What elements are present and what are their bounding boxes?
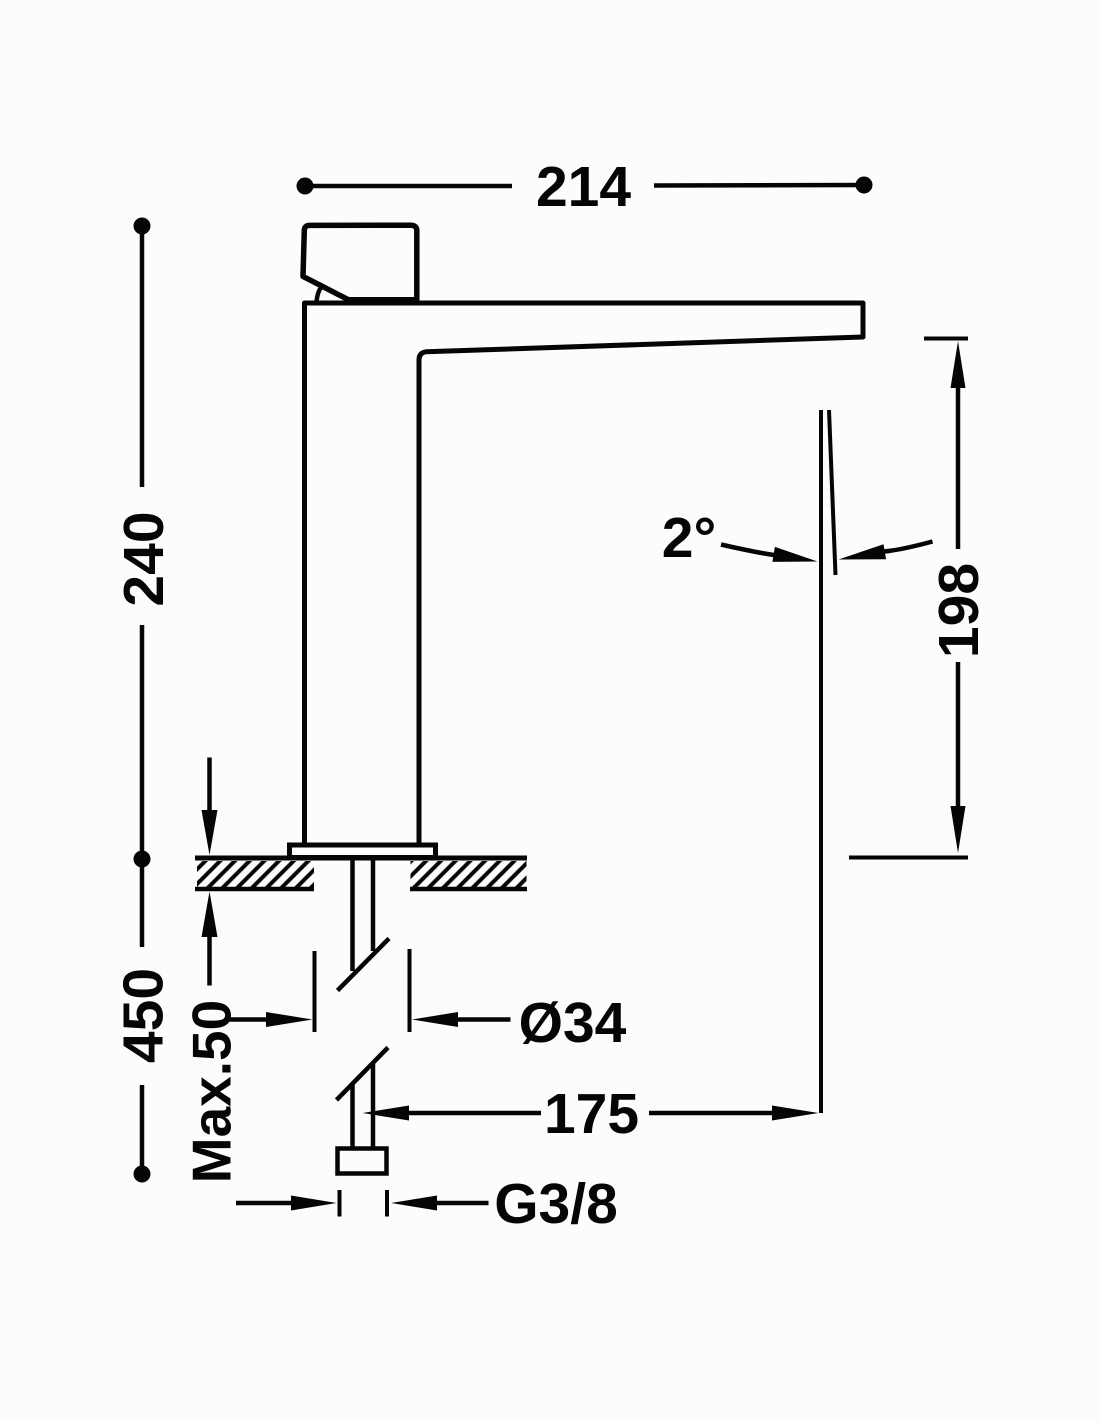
svg-text:240: 240 — [112, 511, 176, 606]
svg-text:2°: 2° — [662, 506, 717, 570]
svg-text:214: 214 — [536, 155, 631, 219]
svg-text:198: 198 — [927, 563, 991, 658]
svg-text:175: 175 — [544, 1082, 639, 1146]
svg-text:G3/8: G3/8 — [494, 1172, 618, 1236]
svg-text:Max.50: Max.50 — [181, 1000, 243, 1183]
svg-text:450: 450 — [112, 968, 176, 1063]
svg-text:Ø34: Ø34 — [519, 991, 627, 1055]
